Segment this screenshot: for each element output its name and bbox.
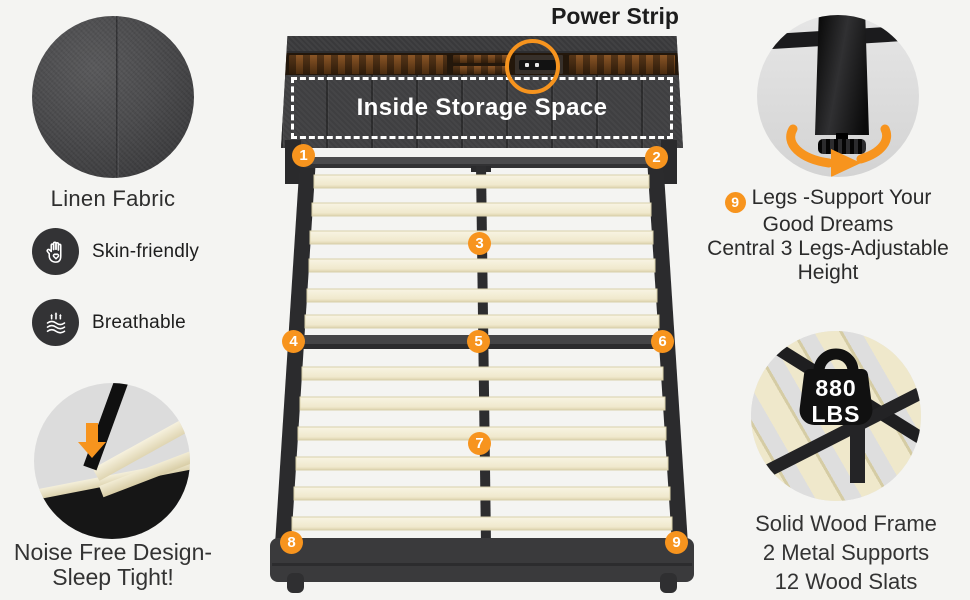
legs-count-badge: 9 <box>725 192 746 213</box>
headboard-storage-shelf <box>281 51 683 77</box>
shelf-cubby <box>569 55 675 74</box>
noise-caption-line1: Noise Free Design- <box>0 540 229 565</box>
shelf-cubby <box>289 55 447 74</box>
callout-badge-4: 4 <box>282 330 305 353</box>
weight-capacity-photo-circle: 880 LBS <box>751 331 921 501</box>
callout-badge-2: 2 <box>645 146 668 169</box>
frame-note-line1: Solid Wood Frame <box>712 509 970 538</box>
legs-note: 9Legs -Support Your Good Dreams Central … <box>686 186 970 285</box>
callout-badge-6: 6 <box>651 330 674 353</box>
shelf-cubby <box>453 55 509 63</box>
weight-unit: LBS <box>791 401 881 427</box>
callout-badge-3: 3 <box>468 232 491 255</box>
footboard-leg <box>660 573 677 593</box>
legs-note-line1: 9Legs -Support Your <box>686 186 970 213</box>
callout-badge-9: 9 <box>665 531 688 554</box>
noise-caption-line2: Sleep Tight! <box>0 565 229 590</box>
feature-breathable: Breathable <box>32 299 186 346</box>
bed-frame-graphic <box>260 146 700 600</box>
product-infographic: Linen Fabric Skin-friendly Breatha <box>0 0 970 600</box>
power-strip-highlight-ring <box>505 39 560 94</box>
legs-note-line2: Good Dreams <box>686 213 970 237</box>
footboard <box>270 538 694 582</box>
down-arrow-icon <box>78 423 106 459</box>
headboard-top-edge <box>281 36 683 51</box>
linen-fabric-label: Linen Fabric <box>0 186 226 212</box>
frame-note: Solid Wood Frame 2 Metal Supports 12 Woo… <box>712 509 970 596</box>
fabric-texture <box>32 16 194 178</box>
shelf-cubby <box>453 66 509 74</box>
linen-fabric-photo-circle <box>32 16 194 178</box>
weight-value: 880 <box>791 375 881 401</box>
legs-note-line4: Height <box>686 261 970 285</box>
callout-badge-5: 5 <box>467 330 490 353</box>
feature-skin-friendly: Skin-friendly <box>32 228 199 275</box>
skin-friendly-label: Skin-friendly <box>92 241 199 263</box>
inside-storage-outline: Inside Storage Space <box>291 77 673 139</box>
callout-badge-8: 8 <box>280 531 303 554</box>
noise-free-caption: Noise Free Design- Sleep Tight! <box>0 540 229 590</box>
adjustable-leg-photo-circle <box>757 15 919 177</box>
frame-note-line2: 2 Metal Supports <box>712 538 970 567</box>
rotate-arrows-icon <box>757 15 919 177</box>
legs-note-line3: Central 3 Legs-Adjustable <box>686 237 970 261</box>
callout-badge-1: 1 <box>292 144 315 167</box>
hand-heart-icon <box>32 228 79 275</box>
breathable-label: Breathable <box>92 312 186 334</box>
callout-badge-7: 7 <box>468 432 491 455</box>
breathable-airflow-icon <box>32 299 79 346</box>
inside-storage-label: Inside Storage Space <box>357 94 608 122</box>
frame-note-line3: 12 Wood Slats <box>712 567 970 596</box>
footboard-leg <box>287 573 304 593</box>
noise-free-photo-circle <box>34 383 190 539</box>
power-strip-label: Power Strip <box>520 3 710 30</box>
headboard: Inside Storage Space <box>281 36 683 148</box>
weight-capacity-text: 880 LBS <box>791 375 881 427</box>
